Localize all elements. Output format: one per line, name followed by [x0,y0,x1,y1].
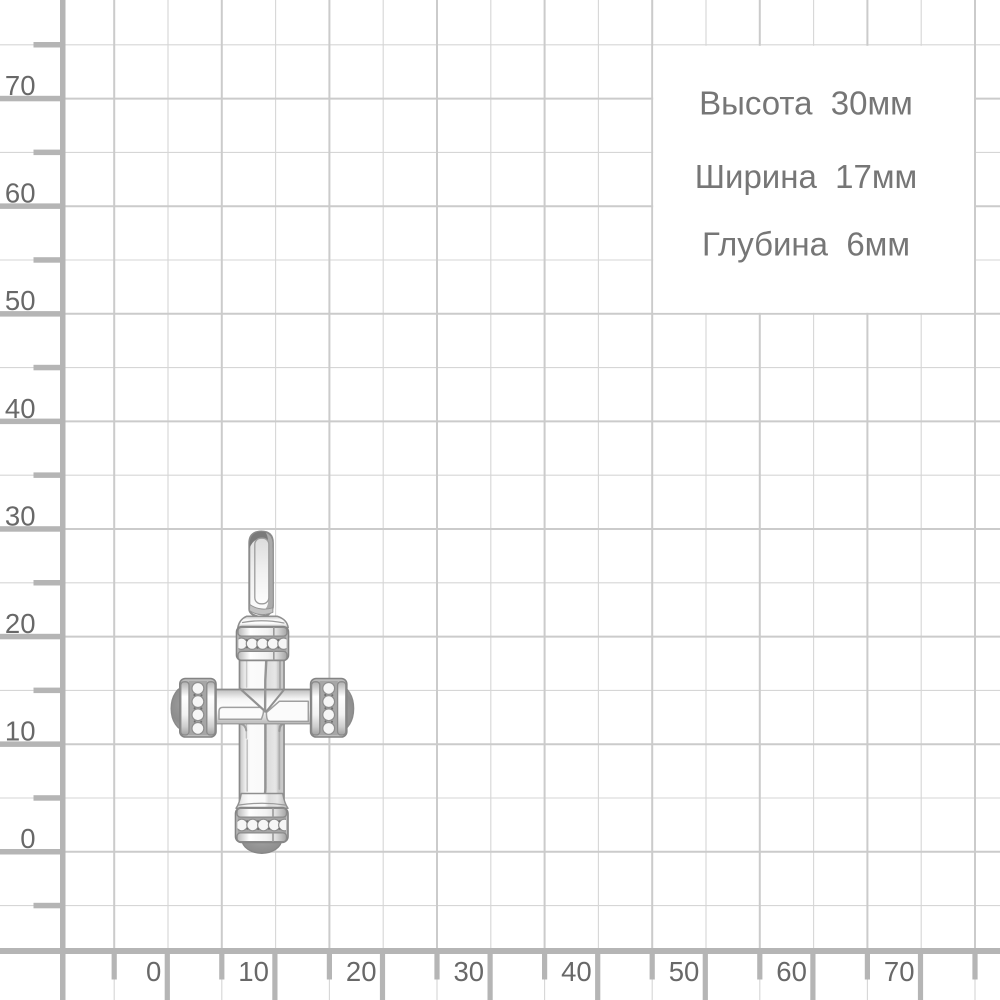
svg-text:Глубина 6мм: Глубина 6мм [702,225,910,262]
svg-text:10: 10 [5,716,36,747]
svg-text:0: 0 [20,823,35,854]
svg-text:30: 30 [454,956,485,987]
svg-text:30: 30 [5,500,36,531]
svg-text:50: 50 [669,956,700,987]
svg-text:70: 70 [5,70,36,101]
svg-text:20: 20 [346,956,377,987]
svg-text:20: 20 [5,608,36,639]
svg-text:0: 0 [146,956,161,987]
svg-text:Ширина 17мм: Ширина 17мм [695,158,917,195]
svg-text:Высота 30мм: Высота 30мм [699,85,913,122]
svg-text:60: 60 [776,956,807,987]
svg-text:60: 60 [5,178,36,209]
svg-text:50: 50 [5,285,36,316]
svg-text:10: 10 [238,956,269,987]
svg-text:70: 70 [884,956,915,987]
svg-text:40: 40 [561,956,592,987]
svg-text:40: 40 [5,393,36,424]
